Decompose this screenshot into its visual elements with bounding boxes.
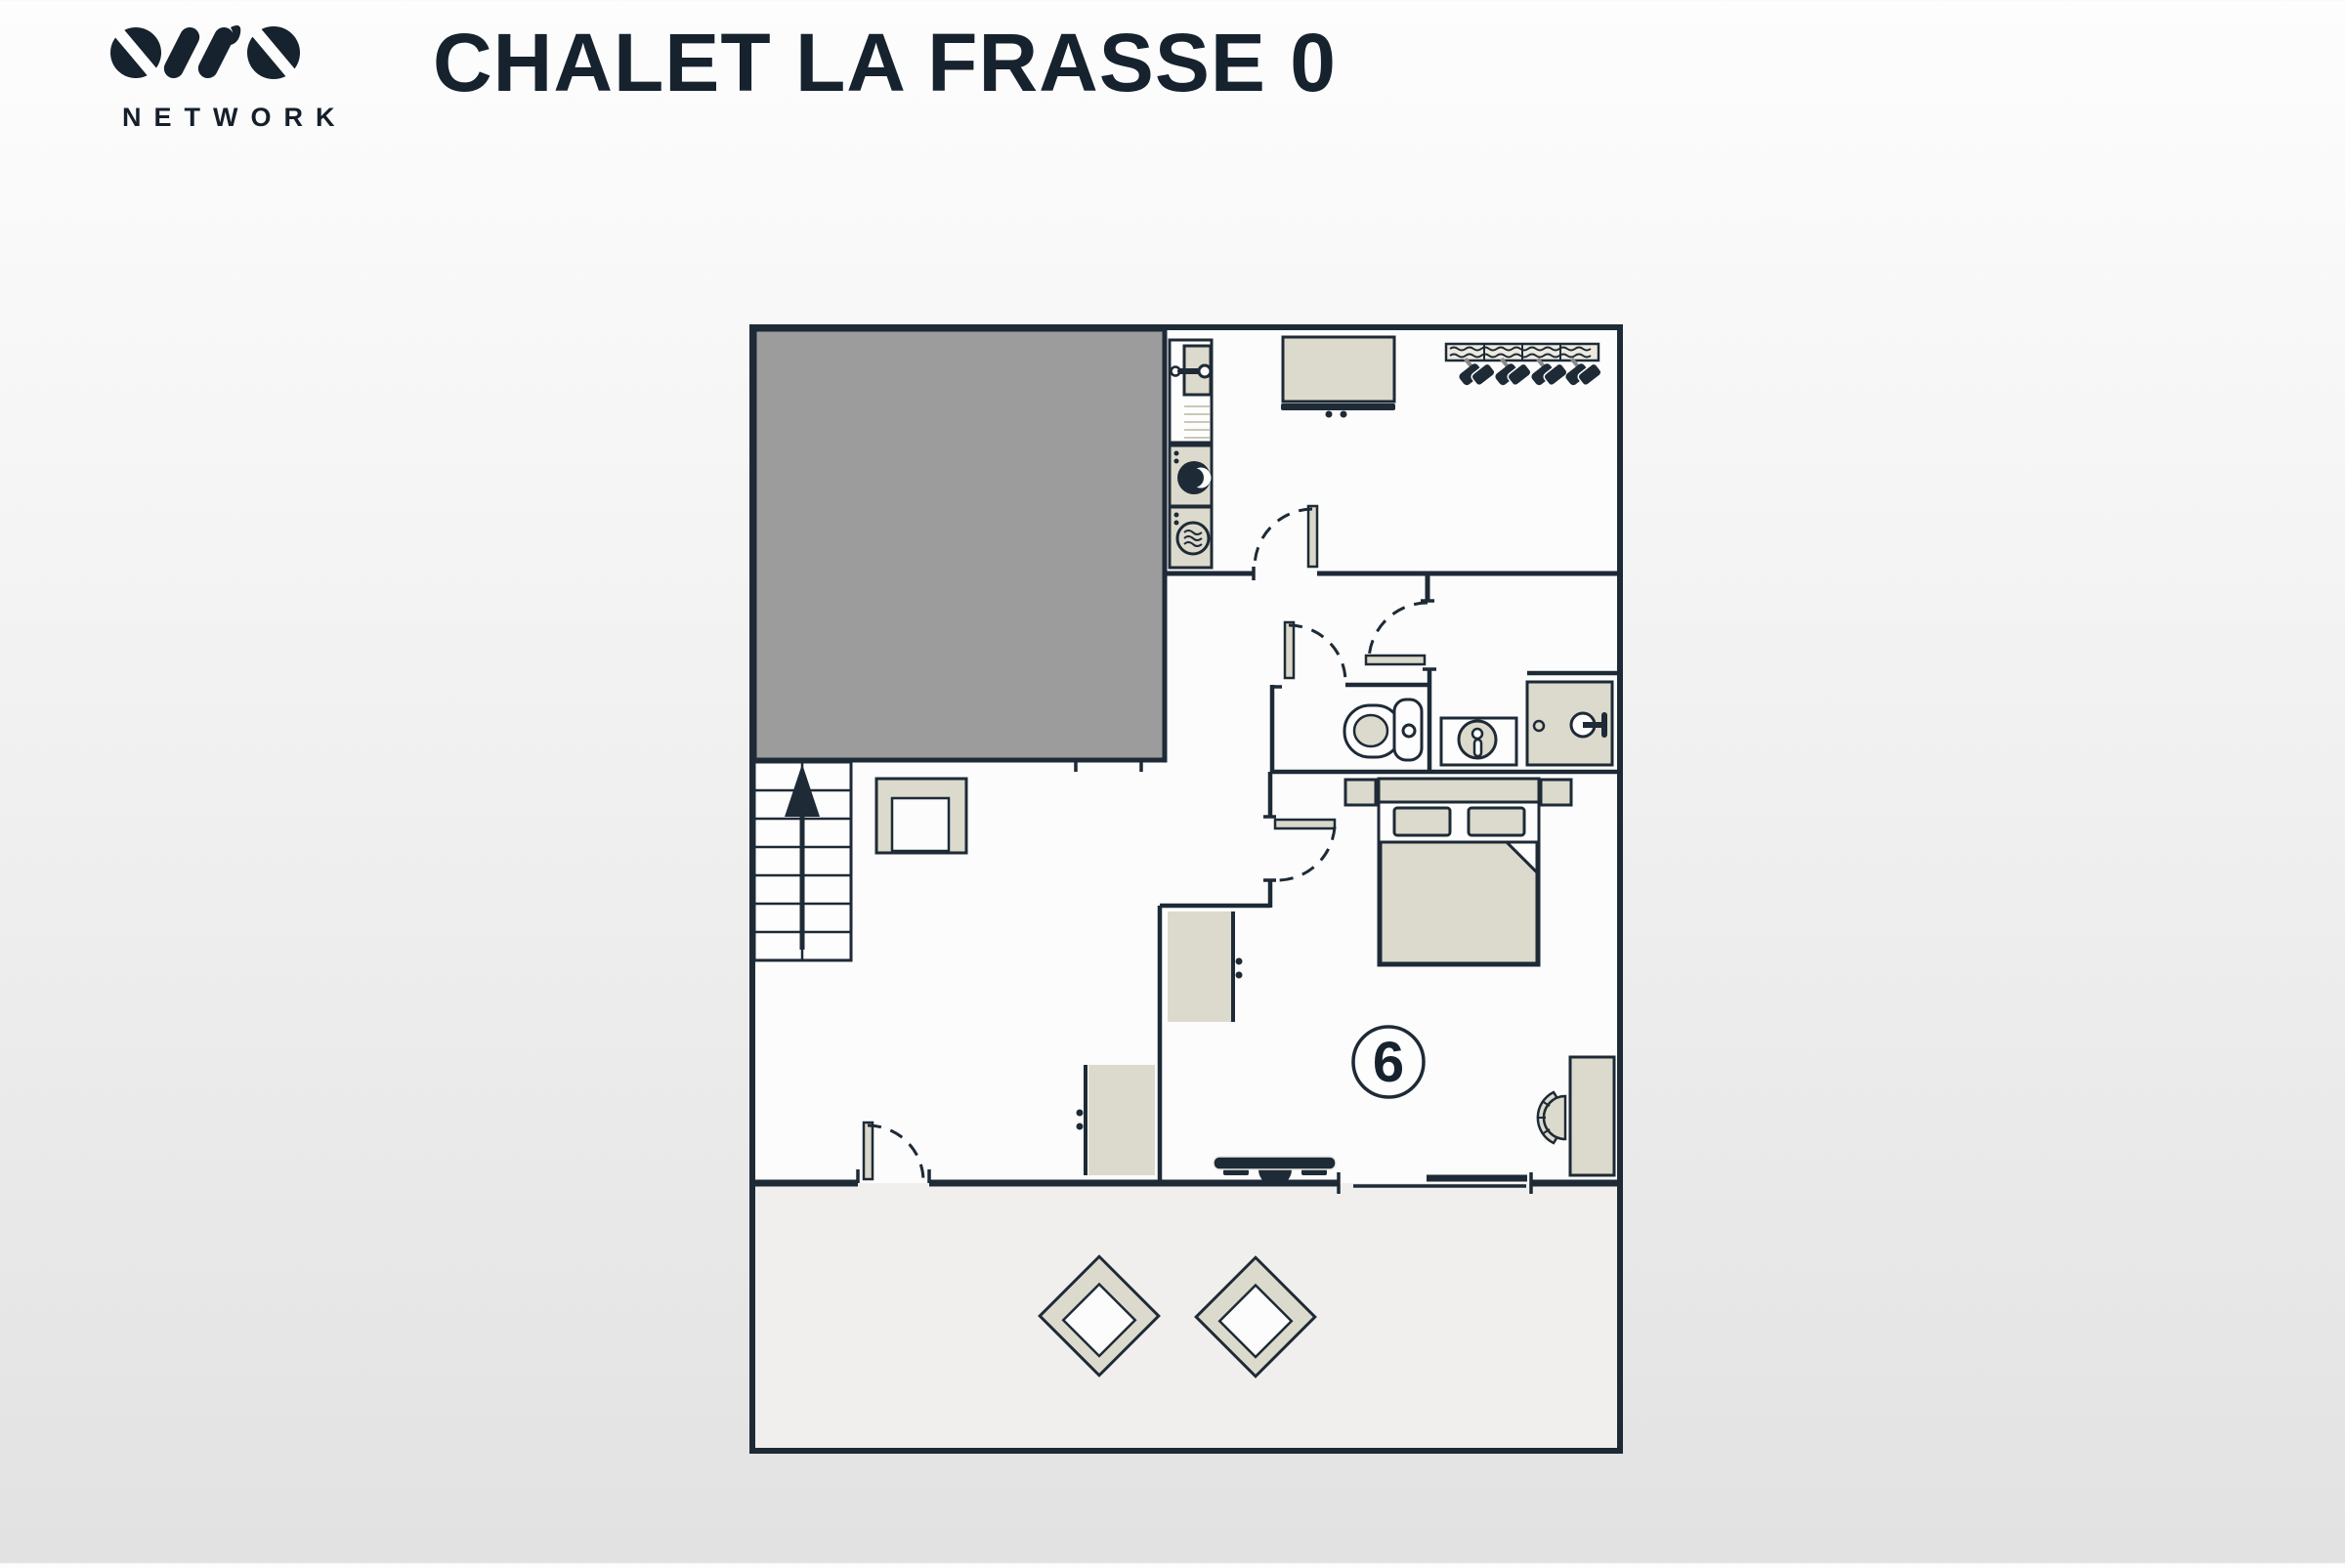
page: NETWORK CHALET LA FRASSE 0 [0, 0, 2345, 1563]
kitchen-sink-unit [1170, 340, 1212, 443]
wardrobe [1168, 911, 1243, 1022]
sofa [876, 779, 966, 853]
sideboard [1281, 337, 1395, 418]
bedroom-number: 6 [1373, 1031, 1404, 1094]
stairs-up [754, 762, 851, 960]
wc-door [1285, 622, 1294, 678]
garage-void-area [754, 329, 1165, 772]
bedroom-number-badge: 6 [1353, 1027, 1424, 1097]
floor-plan: 6 [0, 0, 2345, 1563]
terrace-floor [752, 1183, 1620, 1451]
desk [1570, 1057, 1614, 1175]
nightstand [1345, 780, 1376, 805]
double-bed [1379, 779, 1539, 965]
tumble-dryer [1170, 507, 1212, 568]
toilet [1344, 699, 1422, 760]
washing-machine [1170, 445, 1212, 506]
nightstand [1541, 780, 1571, 805]
washbasin [1441, 718, 1516, 765]
shower-cubicle [1527, 673, 1618, 765]
